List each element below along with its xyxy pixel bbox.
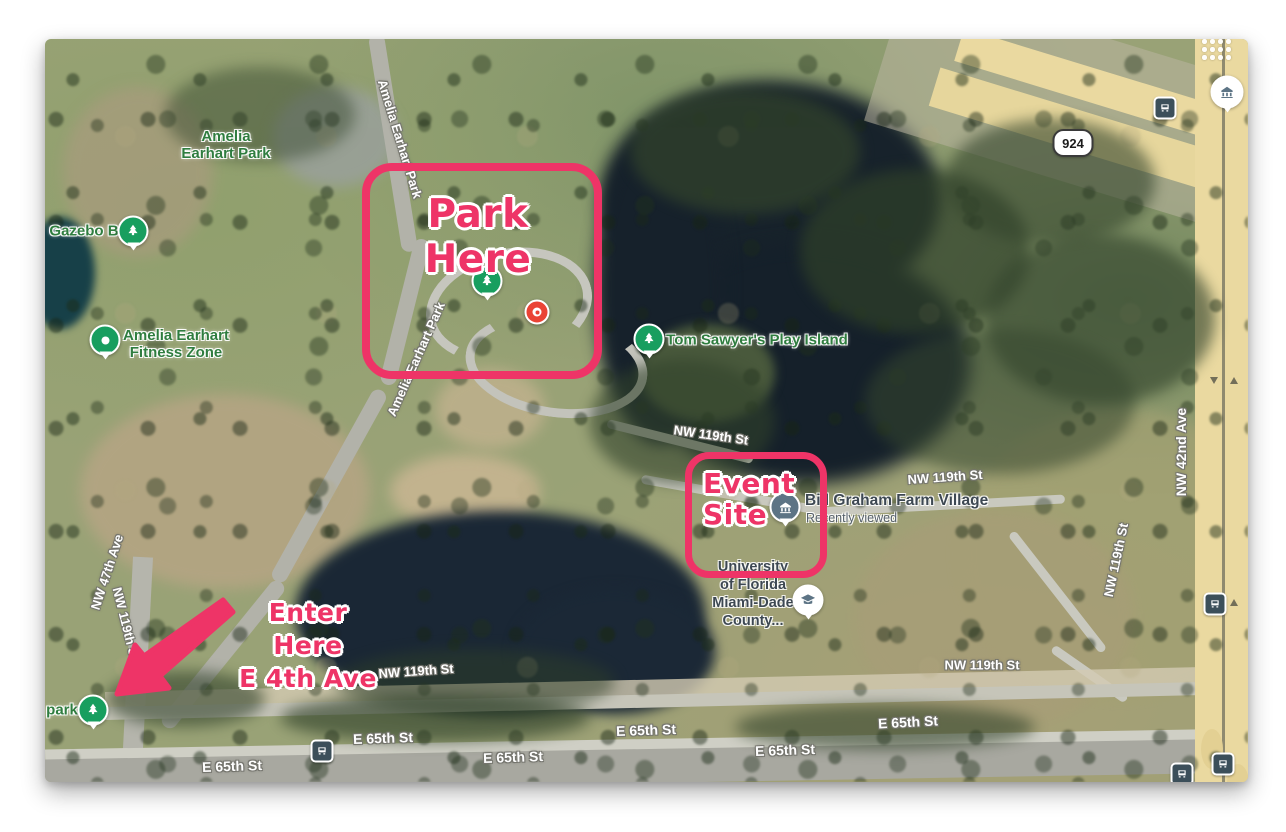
enter-here-arrow <box>45 39 1248 782</box>
map-canvas[interactable]: Amelia Earhart Park Amelia Earhart Park … <box>45 39 1248 782</box>
